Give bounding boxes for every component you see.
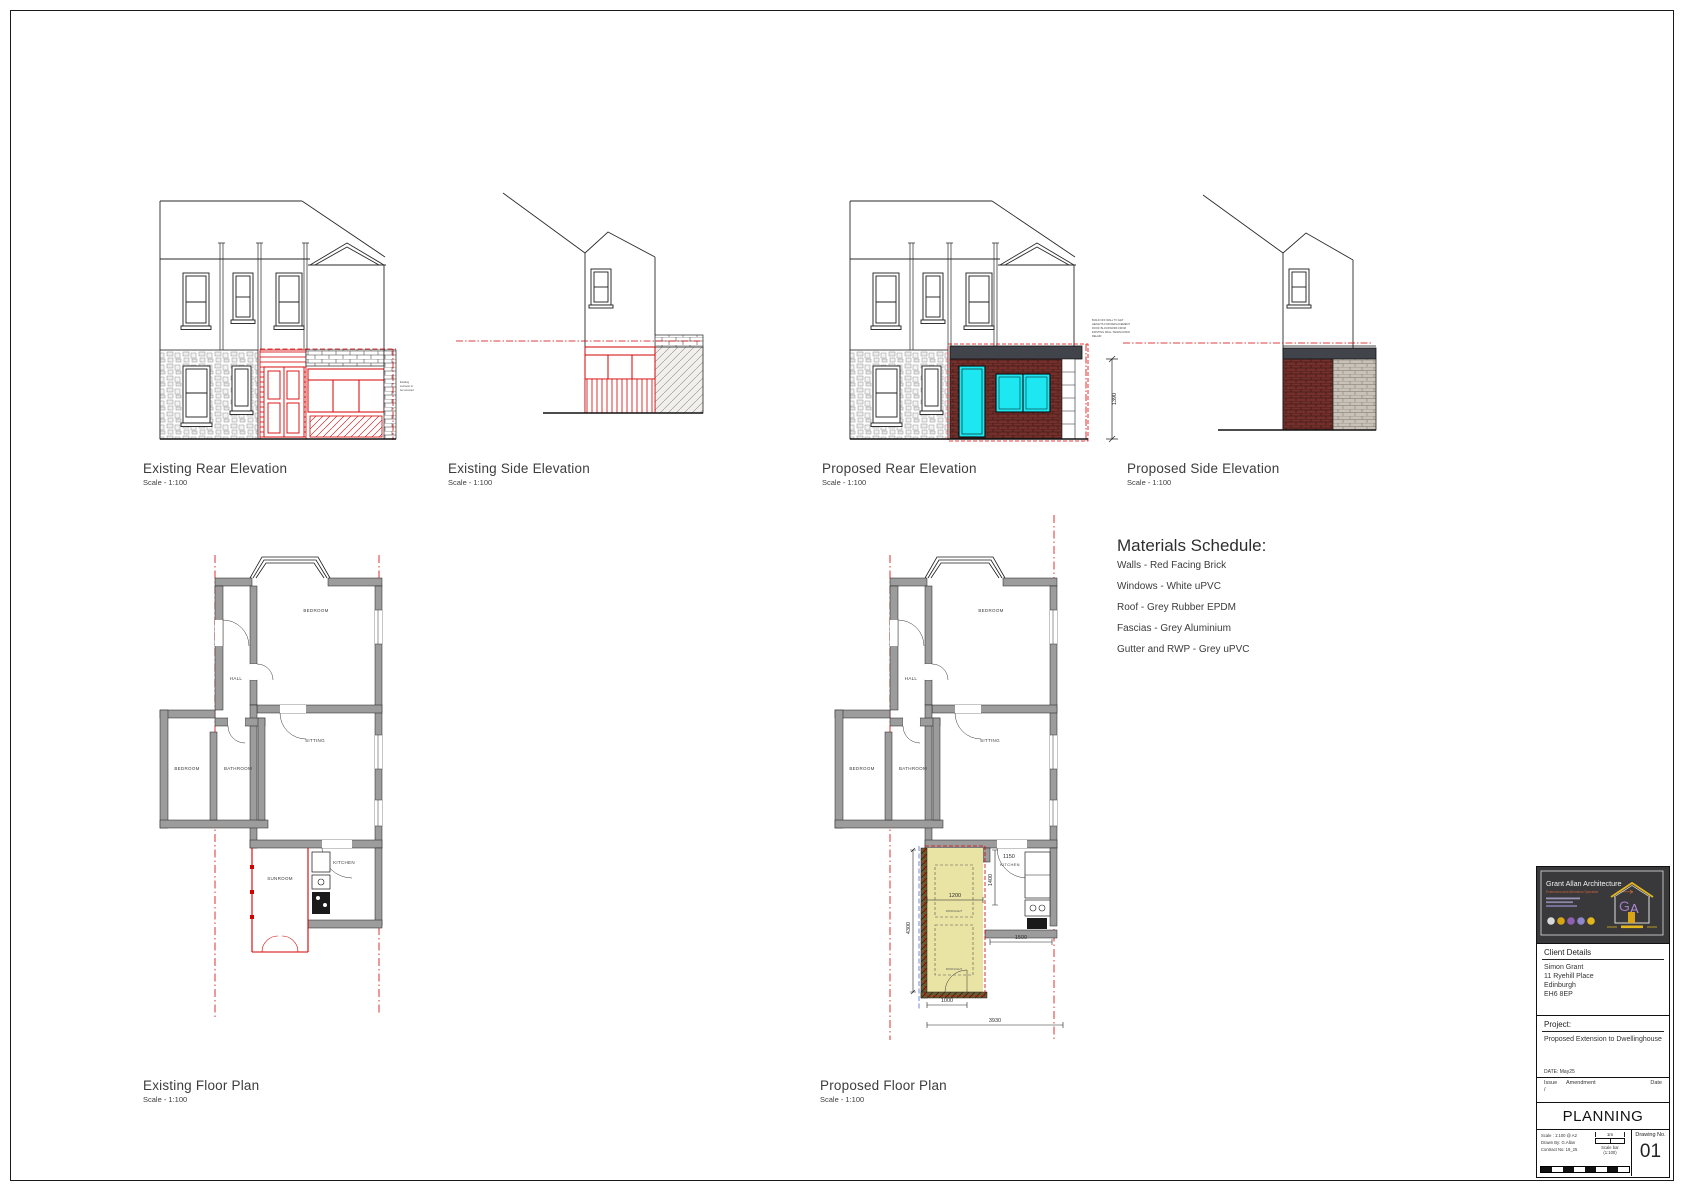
room-label-bedroom-rear: BEDROOM xyxy=(849,766,874,771)
drawing-title: Existing Side Elevation xyxy=(448,461,590,476)
doors xyxy=(890,620,1027,878)
brick-pier xyxy=(384,350,396,439)
proposed-side-elevation-drawing xyxy=(1118,185,1378,440)
dim-1200: 1200 xyxy=(949,893,961,899)
status-section: PLANNING xyxy=(1537,1103,1669,1130)
material-item-windows: Windows - White uPVC xyxy=(1117,581,1377,592)
bay-window xyxy=(925,557,1005,578)
room-label-hall: HALL xyxy=(230,676,243,681)
logo-contact-lines xyxy=(1546,898,1580,907)
stone-boundary-wall xyxy=(1333,359,1376,430)
conservatory-lower-panel xyxy=(585,379,655,413)
drawing-scale: Scale - 1:100 xyxy=(143,478,287,487)
sunroom-door xyxy=(264,367,304,437)
drawing-title: Existing Floor Plan xyxy=(143,1078,259,1093)
client-address-1: 11 Ryehill Place xyxy=(1537,972,1669,981)
logo-tagline: Extensions and Alterations Specialist xyxy=(1546,890,1598,894)
material-item-walls: Walls - Red Facing Brick xyxy=(1117,560,1377,571)
date-col: Date xyxy=(1650,1080,1662,1086)
drawing-title: Proposed Floor Plan xyxy=(820,1078,947,1093)
company-logo: Grant Allan Architecture Extensions and … xyxy=(1537,867,1669,944)
room-label-kitchen: KITCHEN xyxy=(333,860,355,865)
materials-schedule-title: Materials Schedule: xyxy=(1117,536,1377,556)
stone-boundary-wall xyxy=(655,347,703,413)
existing-rear-elevation-caption: Existing Rear Elevation Scale - 1:100 xyxy=(143,461,287,487)
dim-4300: 4300 xyxy=(906,922,912,934)
title-block-bottom: Scale : 1:100 @ A2 Drawn By: G.Allan Con… xyxy=(1537,1130,1669,1176)
rooflight-label-1: ROOFLIGHT xyxy=(946,909,963,913)
issue-header-row: Issue Amendment Date xyxy=(1537,1078,1669,1086)
new-wall-rear xyxy=(921,992,987,998)
existing-floor-plan-caption: Existing Floor Plan Scale - 1:100 xyxy=(143,1078,259,1104)
sunroom-hatch-panel xyxy=(310,416,382,437)
kitchen-units xyxy=(1025,852,1050,929)
demolition-note: Existing sunroom to be removed xyxy=(400,380,414,392)
proposed-floor-plan-caption: Proposed Floor Plan Scale - 1:100 xyxy=(820,1078,947,1104)
proposed-floor-plan-drawing: ROOFLIGHT ROOFLIGHT 4300 1200 1400 1150 … xyxy=(825,500,1085,1060)
issue-current: / xyxy=(1537,1086,1669,1093)
scale-bar-length: 1m xyxy=(1595,1132,1625,1137)
room-label-hall: HALL xyxy=(905,676,918,681)
extension-window xyxy=(996,374,1050,412)
info-contract: Contract No: 19_25 xyxy=(1541,1147,1589,1152)
material-item-gutter: Gutter and RWP - Grey uPVC xyxy=(1117,644,1377,655)
client-postcode: EH6 8EP xyxy=(1537,990,1669,999)
proposed-rear-elevation-drawing: 1390 BUILD OFF WALL TO GET HEIGHTS FOR R… xyxy=(840,183,1140,455)
rooflight-label-2: ROOFLIGHT xyxy=(946,967,963,971)
upper-windows xyxy=(181,273,304,330)
conservatory-windows xyxy=(585,347,655,379)
project-section: Project: Proposed Extension to Dwellingh… xyxy=(1537,1016,1669,1078)
svg-text:be removed: be removed xyxy=(400,388,414,392)
logo-dots xyxy=(1547,917,1595,925)
svg-text:Existing: Existing xyxy=(400,380,410,384)
drawing-title: Existing Rear Elevation xyxy=(143,461,287,476)
room-label-bedroom-front: BEDROOM xyxy=(303,608,328,613)
drawing-scale: Scale - 1:100 xyxy=(143,1095,259,1104)
sunroom-window xyxy=(308,369,384,412)
wing-window xyxy=(589,269,613,308)
logo-house-icon: G A xyxy=(1607,883,1657,928)
glazed-door xyxy=(959,366,985,437)
svg-text:sunroom to: sunroom to xyxy=(400,384,414,388)
room-label-kitchen: KITCHEN xyxy=(1000,862,1020,867)
stone-quoins xyxy=(1062,359,1075,439)
logo-company-name: Grant Allan Architecture xyxy=(1546,879,1622,888)
doors xyxy=(215,620,352,878)
room-label-sitting: SITTING xyxy=(980,738,1000,743)
logo-graphic: Grant Allan Architecture Extensions and … xyxy=(1537,867,1667,941)
material-item-fascias: Fascias - Grey Aluminium xyxy=(1117,623,1377,634)
project-date: DATE: May25 xyxy=(1544,1069,1575,1075)
issue-section: Issue Amendment Date / xyxy=(1537,1078,1669,1103)
extension-brick-wall xyxy=(1283,359,1333,430)
client-details-section: Client Details Simon Grant 11 Ryehill Pl… xyxy=(1537,944,1669,1016)
amendment-col: Amendment xyxy=(1566,1080,1650,1086)
drawing-scale: Scale - 1:100 xyxy=(822,478,977,487)
new-wall-left xyxy=(921,848,927,998)
room-label-bathroom: BATHROOM xyxy=(224,766,252,771)
drawing-number-value: 01 xyxy=(1632,1141,1669,1163)
project-heading: Project: xyxy=(1537,1016,1669,1031)
drawing-scale: Scale - 1:100 xyxy=(820,1095,947,1104)
brick-course-band xyxy=(306,350,384,366)
logo-monogram-g: G xyxy=(1619,898,1630,914)
room-label-bedroom-rear: BEDROOM xyxy=(174,766,199,771)
room-label-sitting: SITTING xyxy=(305,738,325,743)
kitchen-fixtures xyxy=(312,852,330,914)
project-description: Proposed Extension to Dwellinghouse xyxy=(1537,1035,1669,1044)
existing-rear-elevation-drawing: Existing sunroom to be removed xyxy=(150,183,440,455)
dim-1500: 1500 xyxy=(1015,935,1027,941)
info-drawn-by: Drawn By: G.Allan xyxy=(1541,1140,1589,1145)
room-label-sunroom: SUNROOM xyxy=(267,876,293,881)
proposed-side-elevation-caption: Proposed Side Elevation Scale - 1:100 xyxy=(1127,461,1279,487)
wing-window xyxy=(1287,269,1311,308)
drawing-title: Proposed Side Elevation xyxy=(1127,461,1279,476)
status-label: PLANNING xyxy=(1537,1103,1669,1129)
drawing-sheet: Existing sunroom to be removed Existing … xyxy=(0,0,1684,1191)
dim-1000: 1000 xyxy=(941,998,953,1004)
sunroom-outline xyxy=(250,848,308,952)
existing-side-elevation-drawing xyxy=(448,185,708,440)
dim-1400: 1400 xyxy=(988,874,994,886)
upper-windows xyxy=(871,273,994,330)
dim-1150: 1150 xyxy=(1003,854,1015,860)
checker-scale-bar xyxy=(1540,1166,1630,1173)
proposed-rear-elevation-caption: Proposed Rear Elevation Scale - 1:100 xyxy=(822,461,977,487)
client-name: Simon Grant xyxy=(1537,963,1669,972)
drawing-scale: Scale - 1:100 xyxy=(448,478,590,487)
room-label-bedroom-front: BEDROOM xyxy=(978,608,1003,613)
room-label-bathroom: BATHROOM xyxy=(899,766,927,771)
info-scale: Scale : 1:100 @ A2 xyxy=(1541,1133,1589,1138)
fascia-band xyxy=(950,346,1082,359)
title-block: Grant Allan Architecture Extensions and … xyxy=(1536,866,1670,1178)
client-address-2: Edinburgh xyxy=(1537,981,1669,990)
svg-text:RELAID: RELAID xyxy=(1092,334,1101,338)
issue-col: Issue xyxy=(1544,1080,1566,1086)
fascia-band xyxy=(1283,348,1376,359)
drawing-number-cell: Drawing No. 01 xyxy=(1631,1130,1669,1176)
scale-bar-graphic xyxy=(1595,1138,1625,1144)
scale-bar-caption-2: (1:100) xyxy=(1589,1150,1631,1155)
dim-3930: 3930 xyxy=(989,1018,1001,1024)
bay-window xyxy=(250,557,330,578)
existing-side-elevation-caption: Existing Side Elevation Scale - 1:100 xyxy=(448,461,590,487)
existing-floor-plan-drawing: BEDROOM HALL BEDROOM BATHROOM SITTING KI… xyxy=(150,500,410,1045)
drawing-number-label: Drawing No. xyxy=(1632,1130,1669,1138)
drawing-title: Proposed Rear Elevation xyxy=(822,461,977,476)
materials-schedule: Materials Schedule: Walls - Red Facing B… xyxy=(1117,536,1377,655)
client-details-heading: Client Details xyxy=(1537,944,1669,959)
drawing-scale: Scale - 1:100 xyxy=(1127,478,1279,487)
material-item-roof: Roof - Grey Rubber EPDM xyxy=(1117,602,1377,613)
